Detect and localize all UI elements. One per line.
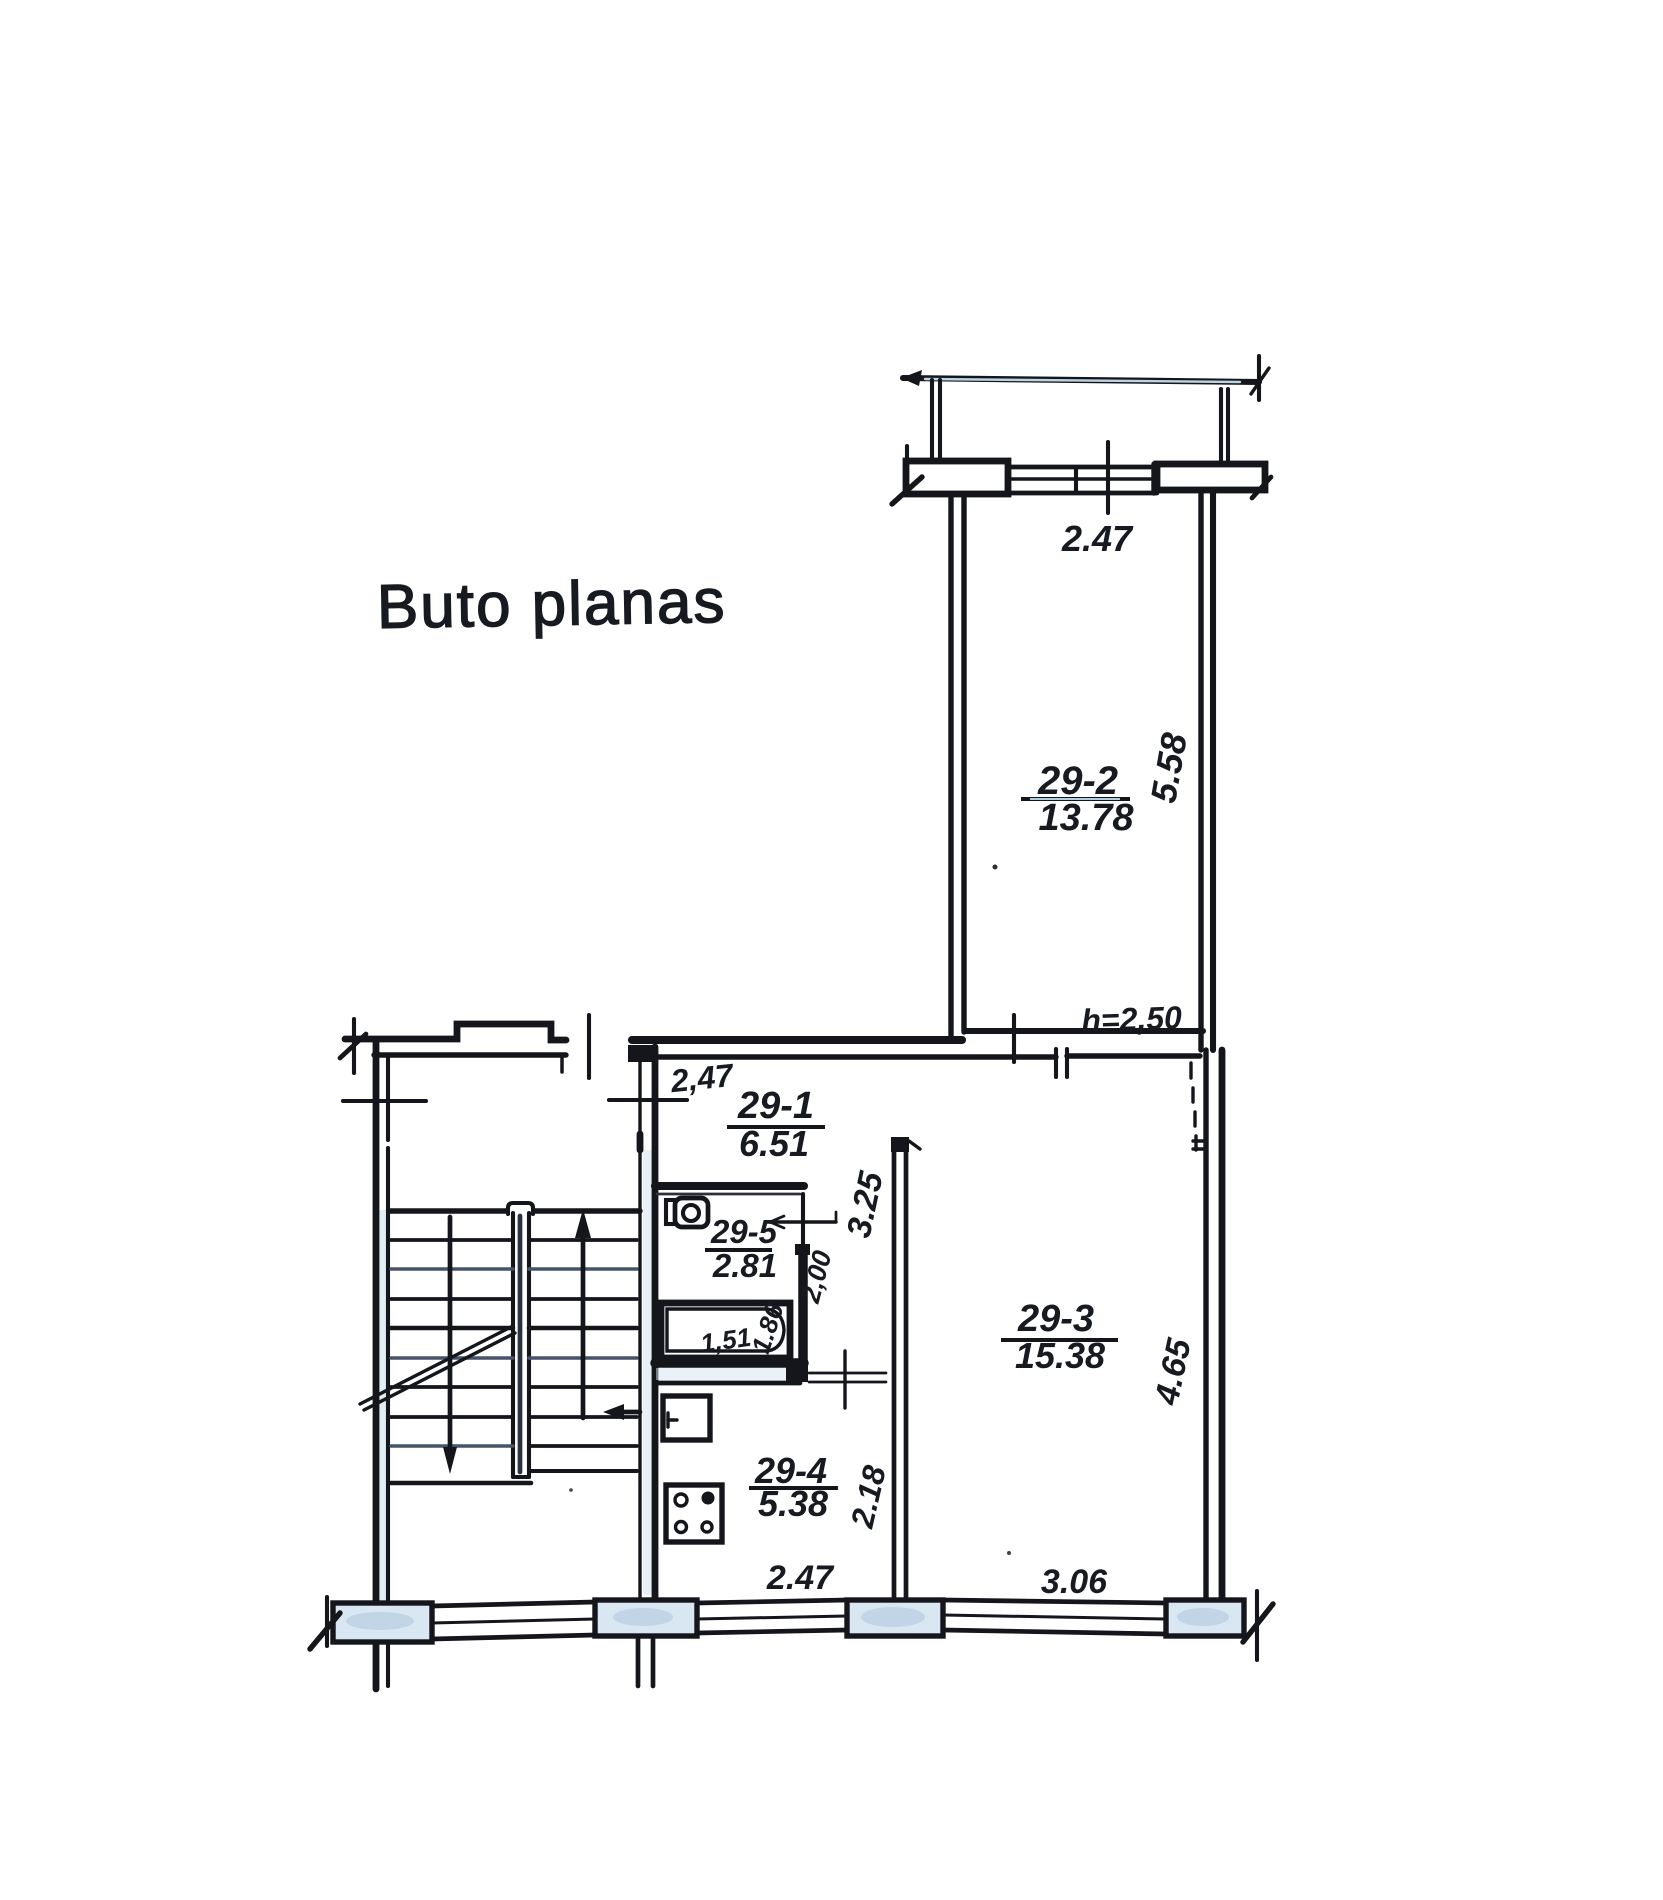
svg-text:2.18: 2.18	[844, 1462, 893, 1532]
svg-text:3.06: 3.06	[1041, 1563, 1108, 1601]
svg-text:2.47: 2.47	[766, 1559, 835, 1597]
svg-text:3.25: 3.25	[840, 1167, 891, 1241]
svg-text:15.38: 15.38	[1015, 1335, 1105, 1376]
svg-text:5.38: 5.38	[758, 1483, 828, 1524]
svg-text:Buto planas: Buto planas	[376, 567, 727, 642]
svg-text:2.81: 2.81	[712, 1247, 777, 1284]
svg-text:29-1: 29-1	[737, 1085, 814, 1127]
svg-text:2,47: 2,47	[668, 1057, 737, 1100]
svg-text:5.58: 5.58	[1142, 730, 1195, 806]
svg-text:29-3: 29-3	[1017, 1298, 1094, 1340]
svg-text:4.65: 4.65	[1148, 1334, 1199, 1409]
svg-text:13.78: 13.78	[1038, 797, 1134, 839]
svg-text:6.51: 6.51	[739, 1123, 809, 1164]
svg-text:29-5: 29-5	[710, 1213, 778, 1250]
svg-text:1,51: 1,51	[699, 1322, 753, 1359]
svg-text:h=2,50: h=2,50	[1081, 999, 1183, 1038]
svg-text:2.47: 2.47	[1061, 518, 1134, 559]
